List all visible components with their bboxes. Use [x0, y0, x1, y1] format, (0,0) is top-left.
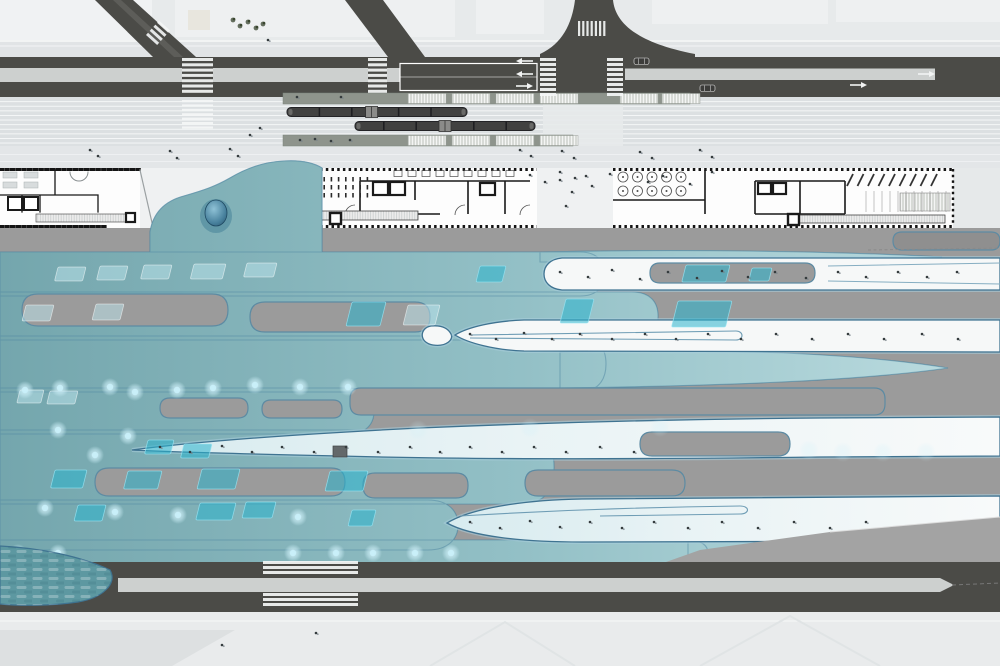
furniture — [3, 182, 17, 188]
tram-vehicle — [287, 107, 467, 118]
furniture — [24, 182, 38, 188]
parcel-court — [188, 10, 210, 30]
room — [390, 182, 405, 195]
column — [330, 213, 341, 224]
buildings — [0, 168, 1000, 228]
parcel — [476, 0, 544, 34]
room — [24, 197, 38, 210]
median-segment — [213, 68, 368, 82]
strip-end — [953, 168, 1000, 228]
counter — [313, 211, 418, 220]
median-segment — [0, 68, 182, 82]
site-plan-canvas — [0, 0, 1000, 666]
car — [700, 85, 715, 92]
furniture — [24, 172, 38, 178]
car — [634, 58, 649, 65]
dome — [205, 200, 227, 226]
furniture — [3, 172, 17, 178]
paved-zone — [900, 193, 950, 211]
column — [788, 214, 799, 225]
counter — [36, 214, 132, 222]
room — [8, 197, 22, 210]
site-plan — [0, 0, 1000, 666]
room — [373, 182, 388, 195]
tram-vehicle — [355, 121, 535, 132]
bench-counter — [790, 215, 945, 223]
room — [758, 183, 771, 194]
median-segment — [625, 69, 935, 81]
transit-corridor — [0, 93, 1000, 168]
median-segment — [387, 68, 400, 82]
sidewalk — [0, 612, 1000, 666]
top-parcels — [0, 0, 1000, 57]
column — [126, 213, 135, 222]
walk-lines — [0, 148, 1000, 166]
room — [773, 183, 786, 194]
parcel — [175, 0, 455, 37]
parcel — [836, 0, 1000, 22]
parcel — [652, 0, 828, 24]
median-strip — [118, 578, 954, 592]
room — [480, 183, 495, 195]
